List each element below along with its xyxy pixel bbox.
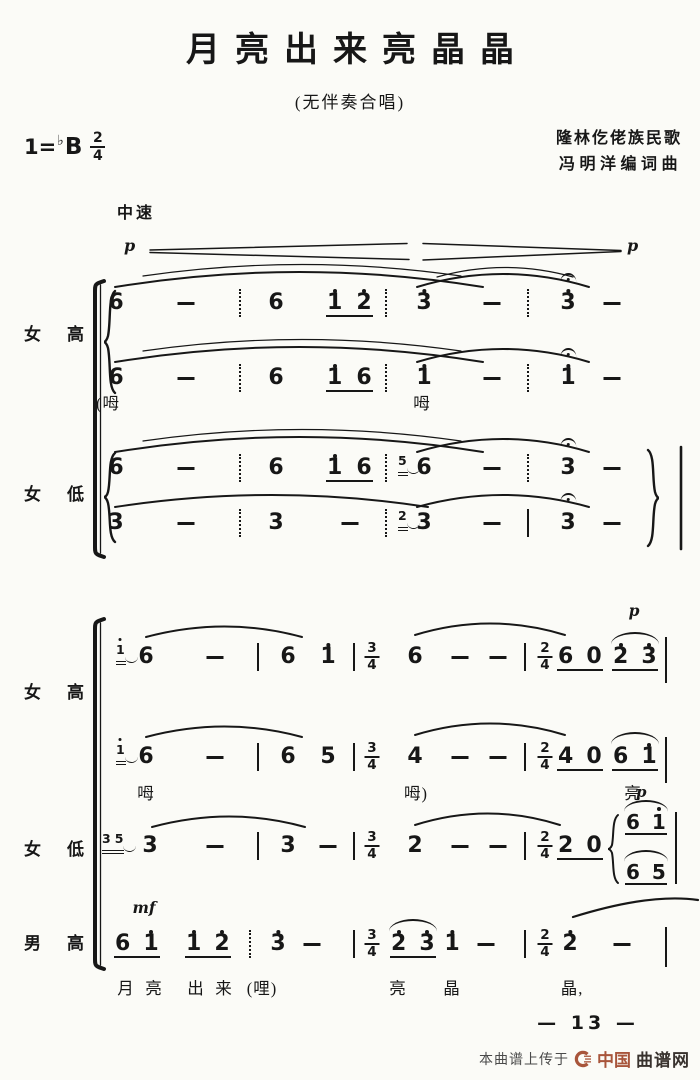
octave-dot (422, 289, 426, 293)
grace-beam (116, 661, 126, 663)
lyric-syllable: 呣 (137, 777, 155, 811)
octave-dot (220, 930, 224, 934)
ts-denominator: 4 (540, 659, 549, 671)
note-digit: 1 (444, 927, 459, 961)
beam-group: 40 (558, 740, 602, 774)
divisi-voice: 61 (626, 807, 666, 837)
beam-underline (612, 769, 658, 771)
lyric-line-tenor-system2: 月亮出来(哩)亮晶晶, (0, 972, 700, 1006)
barline (665, 637, 667, 683)
barline (239, 454, 241, 482)
grace-notes: 5 (398, 453, 407, 477)
voice-line-soprano1-system2: 16613462460p23 (0, 640, 700, 674)
grace-beam (398, 475, 408, 477)
note-digit: 6 (268, 286, 283, 320)
tie-slur (146, 727, 302, 738)
ts-numerator: 2 (540, 742, 549, 754)
note-digit: 1 (116, 642, 125, 666)
note-digit: 6 (108, 286, 123, 320)
slur-arc (624, 850, 668, 862)
barline (527, 454, 529, 482)
ts-denominator: 4 (367, 946, 376, 958)
octave-dot (333, 289, 337, 293)
note-digit: 6 (138, 640, 153, 674)
lyric-syllable: 亮 (389, 972, 407, 1006)
ts-denominator: 4 (540, 759, 549, 771)
duration-dash (484, 467, 501, 470)
octave-dot (450, 930, 454, 934)
note-digit: 6 (280, 640, 295, 674)
duration-dash (604, 467, 621, 470)
page-number: — 13 — (537, 1012, 639, 1034)
duration-dash (342, 522, 359, 525)
beam-underline (326, 480, 373, 482)
beam-group: 23 (391, 927, 435, 961)
octave-dot (149, 930, 153, 934)
grace-beam (116, 764, 126, 766)
note-digit: 1 (320, 640, 335, 674)
divisi-voice: 65 (626, 857, 666, 887)
watermark: 本曲谱上传于 中国 曲谱网 (479, 1046, 690, 1071)
beam-underline (557, 669, 603, 671)
ts-numerator: 2 (540, 642, 549, 654)
note-digit: 6 (138, 740, 153, 774)
duration-dash (178, 377, 195, 380)
duration-dash (207, 845, 224, 848)
grace-beam (102, 853, 124, 855)
grace-beam (398, 472, 408, 474)
beam-group: 16 (327, 451, 372, 485)
watermark-brand-strong: 中国 (597, 1046, 631, 1071)
duration-dash (178, 302, 195, 305)
barline (665, 927, 667, 967)
tie-slur (415, 814, 560, 826)
note-digit: 3 (142, 829, 157, 863)
barline (239, 509, 241, 537)
voice-line-alto1-system1: 6616563 (0, 451, 700, 485)
beam-underline (326, 315, 373, 317)
beam-group: 20 (558, 829, 602, 863)
note-digit: 3 (416, 506, 431, 540)
duration-dash (304, 943, 321, 946)
time-signature: 34 (363, 640, 381, 674)
dynamic-mark: mf (132, 891, 155, 925)
crescendo-hairpin (150, 244, 407, 251)
note-digit: 4 (407, 740, 422, 774)
lyric-syllable: (呣 (96, 387, 120, 421)
grace-notes: 1 (116, 742, 125, 766)
duration-dash (604, 522, 621, 525)
watermark-brand: 曲谱网 (636, 1046, 690, 1071)
octave-dot (119, 738, 122, 741)
beam-underline (557, 858, 603, 860)
duration-dash (452, 756, 469, 759)
ts-denominator: 4 (540, 946, 549, 958)
tie-slur (146, 627, 302, 638)
barline (385, 509, 387, 537)
duration-dash (320, 845, 337, 848)
lyric-syllable: 呣) (404, 777, 428, 811)
note-digit: 3 (268, 506, 283, 540)
note-digit: 6 (407, 640, 422, 674)
phrase-slur (143, 430, 461, 442)
grace-tie (125, 755, 138, 763)
time-signature: 24 (536, 640, 554, 674)
beam-group: 61 (613, 740, 657, 774)
tie-slur (573, 898, 698, 917)
duration-dash (604, 302, 621, 305)
duration-dash (478, 943, 495, 946)
barline (527, 289, 529, 317)
octave-dot (362, 289, 366, 293)
voice-line-soprano2-system2: 1665344244061 (0, 740, 700, 774)
grace-tie (125, 655, 138, 663)
note-digit: 2 (562, 927, 577, 961)
grace-tie (123, 844, 136, 852)
note-digit: 3 (270, 927, 285, 961)
duration-dash (452, 845, 469, 848)
ts-numerator: 2 (540, 831, 549, 843)
time-signature: 34 (363, 740, 381, 774)
decrescendo-hairpin (423, 244, 621, 251)
barline (257, 832, 259, 860)
duration-dash (484, 522, 501, 525)
beam-underline (557, 769, 603, 771)
time-signature: 24 (536, 927, 554, 961)
lyric-syllable: 呣 (413, 387, 431, 421)
note-digit: 3 (108, 506, 123, 540)
note-digit: 5 (398, 453, 407, 477)
note-digit: 3 (560, 286, 575, 320)
duration-dash (484, 377, 501, 380)
ts-numerator: 3 (367, 831, 376, 843)
barline (353, 643, 355, 671)
octave-dot (566, 364, 570, 368)
lyric-syllable: 来 (215, 972, 233, 1006)
barline (353, 832, 355, 860)
dynamic-p: p (636, 783, 647, 801)
note-digit: 6 (280, 740, 295, 774)
lyric-syllable: 出 (187, 972, 205, 1006)
beam-group: 12 (186, 927, 230, 961)
barline (385, 289, 387, 317)
time-signature: 34 (363, 927, 381, 961)
barline (524, 832, 526, 860)
grace-beam (398, 530, 408, 532)
note-digit: 1 (116, 742, 125, 766)
duration-dash (207, 756, 224, 759)
fermata-icon (560, 273, 576, 282)
voice-line-alto-system2: 3533342242061p65 (0, 829, 700, 863)
grace-notes: 1 (116, 642, 125, 666)
duration-dash (452, 656, 469, 659)
beam-group: 60 (558, 640, 602, 674)
grace-beam (398, 527, 408, 529)
note-digit: 3 (280, 829, 295, 863)
fermata-icon (560, 438, 576, 447)
beam-group: 23 (613, 640, 657, 674)
beam-underline (625, 883, 667, 885)
beam-group: 12 (327, 286, 372, 320)
octave-dot (192, 930, 196, 934)
site-logo-icon (574, 1050, 592, 1068)
duration-dash (484, 302, 501, 305)
note-digit: 3 (416, 286, 431, 320)
lyric-line-sopranos-system2: 呣呣)亮 (0, 777, 700, 811)
barline (385, 454, 387, 482)
score-page: 月亮出来亮晶晶 (无伴奏合唱) 1= ♭ B 2 4 隆林仡佬族民歌 冯明洋编词… (0, 0, 700, 1080)
note-digit: 3 (560, 506, 575, 540)
grace-beam (116, 664, 126, 666)
lyric-syllable: (哩) (247, 972, 278, 1006)
phrase-slur (143, 340, 461, 352)
duration-dash (490, 845, 507, 848)
octave-dot (566, 289, 570, 293)
note-digit: 2 (407, 829, 422, 863)
ts-denominator: 4 (367, 759, 376, 771)
barline (353, 743, 355, 771)
note-digit: 6 (416, 451, 431, 485)
note-digit: 5 (320, 740, 335, 774)
beam-underline (390, 956, 436, 958)
ts-numerator: 2 (540, 929, 549, 941)
crescendo-hairpin (150, 253, 409, 260)
ts-denominator: 4 (367, 659, 376, 671)
note-digit: 3 (560, 451, 575, 485)
note-digit: 5 (115, 831, 124, 855)
beam-underline (612, 669, 658, 671)
barline (257, 643, 259, 671)
lyric-syllable: 晶 (443, 972, 461, 1006)
lyric-syllable: 亮 (145, 972, 163, 1006)
beam-underline (185, 956, 231, 958)
barline (257, 743, 259, 771)
duration-dash (604, 377, 621, 380)
lyric-syllable: 月 (117, 972, 135, 1006)
time-signature: 34 (363, 829, 381, 863)
beam-group: 61 (115, 927, 159, 961)
octave-dot (568, 930, 572, 934)
duration-dash (490, 656, 507, 659)
barline (239, 289, 241, 317)
phrase-slur (143, 265, 461, 277)
ts-denominator: 4 (367, 848, 376, 860)
lyric-line-system1: (呣呣 (0, 387, 700, 421)
voice-label-soprano: 女高 (24, 678, 110, 703)
watermark-prefix: 本曲谱上传于 (479, 1049, 569, 1069)
barline (524, 743, 526, 771)
barline (527, 509, 529, 537)
duration-dash (490, 756, 507, 759)
octave-dot (119, 638, 122, 641)
note-digit: 6 (268, 451, 283, 485)
lyric-syllable: 晶, (561, 972, 584, 1006)
dynamic-mark: p (629, 594, 640, 628)
voice-line-alto2-system1: 33233 (0, 506, 700, 540)
octave-dot (333, 454, 337, 458)
time-signature: 24 (536, 740, 554, 774)
octave-dot (276, 930, 280, 934)
barline (249, 930, 251, 958)
barline (524, 930, 526, 958)
ts-numerator: 3 (367, 642, 376, 654)
note-digit: 6 (108, 451, 123, 485)
octave-dot (326, 643, 330, 647)
tie-slur (415, 724, 565, 736)
beam-underline (625, 833, 667, 835)
grace-notes: 2 (398, 508, 407, 532)
barline (353, 930, 355, 958)
grace-beam (116, 761, 126, 763)
octave-dot (333, 364, 337, 368)
tie-slur (152, 817, 305, 828)
ts-numerator: 3 (367, 742, 376, 754)
ts-denominator: 4 (540, 848, 549, 860)
duration-dash (207, 656, 224, 659)
score-decorations (0, 0, 700, 1080)
ts-numerator: 3 (367, 929, 376, 941)
voice-line-soprano1-system1: 661233 (0, 286, 700, 320)
grace-notes: 35 (102, 831, 123, 855)
time-signature: 24 (536, 829, 554, 863)
octave-dot (422, 364, 426, 368)
duration-dash (614, 943, 631, 946)
note-digit: 3 (102, 831, 111, 855)
voice-label-soprano: 女高 (24, 320, 110, 345)
grace-beam (102, 850, 124, 852)
voice-line-tenor-system2: mf6112334231242 (0, 927, 700, 961)
barline (524, 643, 526, 671)
barline (675, 812, 677, 884)
note-digit: 2 (398, 508, 407, 532)
decrescendo-hairpin (423, 252, 621, 261)
tie-slur (415, 624, 565, 636)
fermata-icon (560, 348, 576, 357)
beam-underline (114, 956, 160, 958)
duration-dash (178, 467, 195, 470)
duration-dash (178, 522, 195, 525)
fermata-icon (560, 493, 576, 502)
